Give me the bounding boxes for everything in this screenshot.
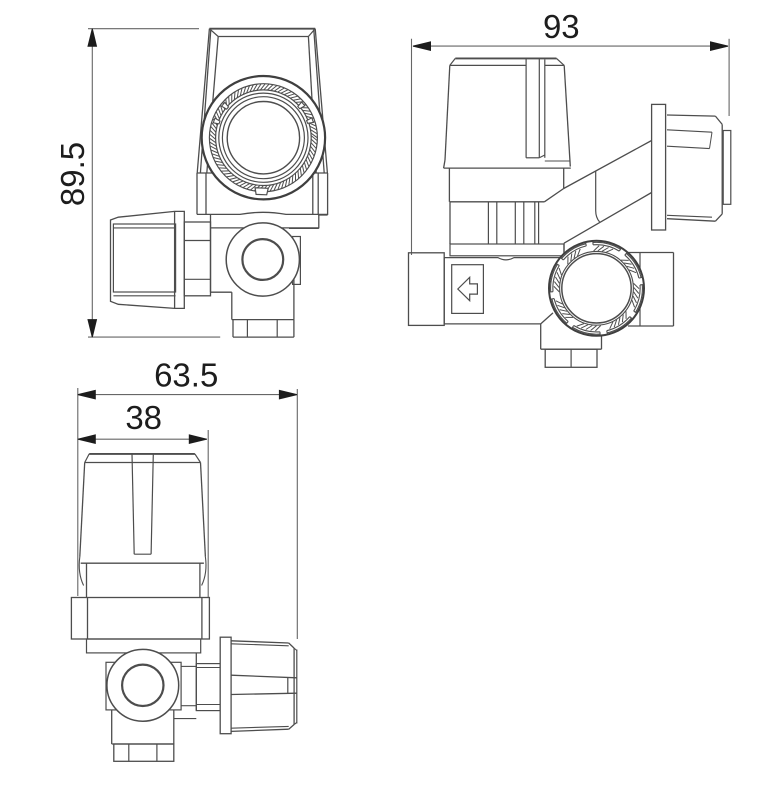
svg-text:38: 38	[125, 399, 162, 436]
svg-text:63.5: 63.5	[154, 357, 218, 394]
svg-text:93: 93	[543, 8, 580, 45]
svg-text:89.5: 89.5	[54, 142, 91, 206]
